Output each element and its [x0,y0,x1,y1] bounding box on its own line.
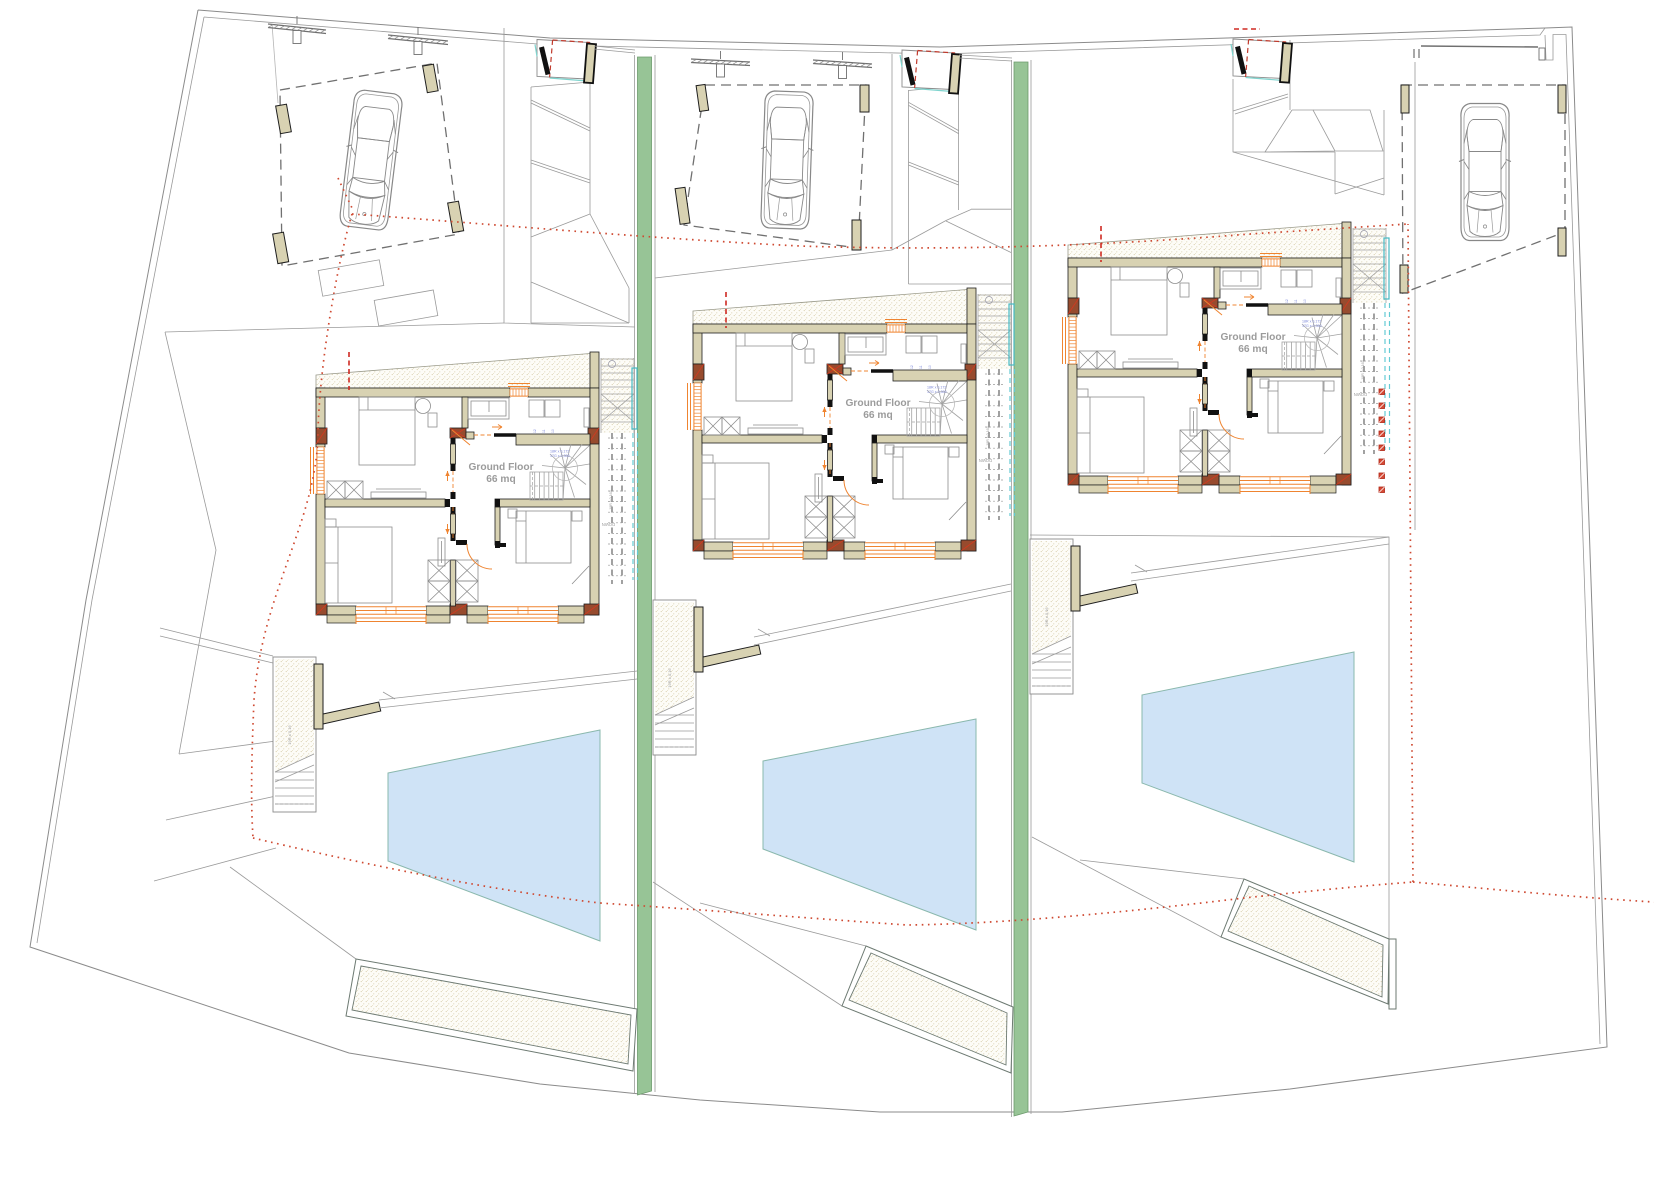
svg-text:19R x 0,16: 19R x 0,16 [287,725,292,745]
svg-text:19R x 0,16: 19R x 0,16 [667,668,672,688]
svg-text:19R x 0,16: 19R x 0,16 [1044,607,1049,627]
